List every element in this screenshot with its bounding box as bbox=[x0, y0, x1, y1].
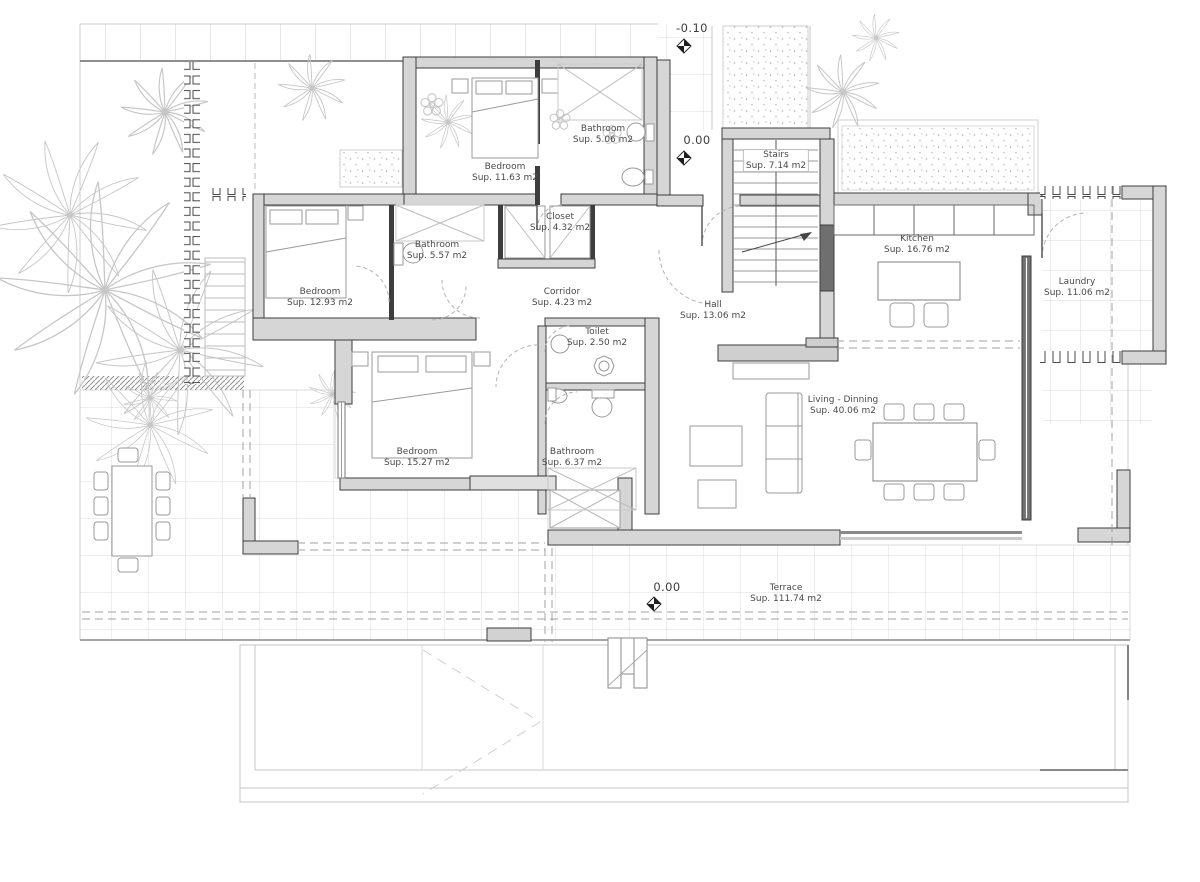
elevation-marker-entry-path: -0.10 bbox=[676, 21, 708, 35]
room-label-bathroom-top: Bathroom Sup. 5.06 m2 bbox=[573, 124, 633, 145]
room-label-hall: Hall Sup. 13.06 m2 bbox=[680, 300, 746, 321]
room-label-living-dinning: Living - Dinning Sup. 40.06 m2 bbox=[808, 395, 878, 416]
room-label-bathroom-mid: Bathroom Sup. 5.57 m2 bbox=[407, 240, 467, 261]
pergola-louvers bbox=[184, 62, 246, 384]
room-label-bedroom-left: Bedroom Sup. 12.93 m2 bbox=[287, 287, 353, 308]
room-label-bathroom-bottom: Bathroom Sup. 6.37 m2 bbox=[542, 447, 602, 468]
room-label-kitchen: Kitchen Sup. 16.76 m2 bbox=[884, 234, 950, 255]
level-symbol bbox=[677, 151, 691, 165]
elevation-marker-entrance: 0.00 bbox=[683, 133, 710, 147]
room-label-bedroom-top: Bedroom Sup. 11.63 m2 bbox=[472, 162, 538, 183]
room-label-laundry: Laundry Sup. 11.06 m2 bbox=[1044, 277, 1110, 298]
room-label-toilet: Toilet Sup. 2.50 m2 bbox=[567, 327, 627, 348]
room-label-closet: Closet Sup. 4.32 m2 bbox=[530, 212, 590, 233]
room-label-stairs: Stairs Sup. 7.14 m2 bbox=[744, 150, 808, 171]
door-leaves bbox=[537, 205, 1042, 258]
room-label-corridor: Corridor Sup. 4.23 m2 bbox=[532, 287, 592, 308]
elevation-marker-terrace: 0.00 bbox=[653, 580, 680, 594]
roof-outline bbox=[240, 628, 1128, 802]
floorplan-canvas: Bathroom Sup. 5.06 m2 Bedroom Sup. 11.63… bbox=[0, 0, 1200, 882]
room-label-bedroom-bottom: Bedroom Sup. 15.27 m2 bbox=[384, 447, 450, 468]
room-label-terrace: Terrace Sup. 111.74 m2 bbox=[750, 583, 822, 604]
